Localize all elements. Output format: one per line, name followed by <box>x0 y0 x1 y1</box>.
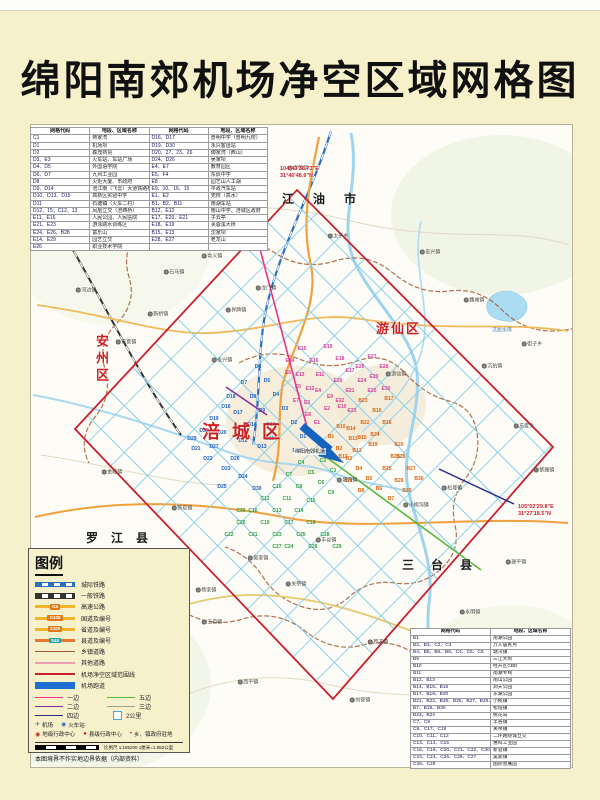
table-cell: 丰谷镇 <box>491 719 571 726</box>
table-cell: B9 <box>411 656 491 663</box>
table-cell: 火炬大厦、市政府 <box>90 178 149 185</box>
table-cell: B1、B2、B11 <box>149 200 208 207</box>
table-cell: E4、E7 <box>149 164 208 171</box>
legend-edge-items: 一边五边二边三边四边2公里 <box>35 693 183 720</box>
table-row: C7、C9丰谷镇 <box>411 719 571 726</box>
table-cell: B2、B3、C2、C3 <box>411 642 491 649</box>
table-cell: 国际会展园 <box>491 761 571 768</box>
table-row: B7、B19、B30松垭镇 <box>411 705 571 712</box>
县级行政中心-icon: ● <box>83 731 87 737</box>
table-row: D12、15；C12、13凤凰立交（涪西桥）B12、E12南山中学、涪城区政府 <box>31 207 268 214</box>
table-cell: 子云亭 <box>208 215 267 222</box>
edge-label: 四边 <box>67 711 79 720</box>
legend-label: 一般铁路 <box>81 591 105 600</box>
table-cell: D1 <box>31 142 90 149</box>
legend-label: 县道及编号 <box>81 636 111 645</box>
table-cell: 火车站、车站广场 <box>90 157 149 164</box>
table-row: B1南湖公园 <box>411 635 571 642</box>
edge-label: 二边 <box>67 702 79 711</box>
table-cell: 人民公园、人民医院 <box>90 215 149 222</box>
table-cell: 小枧镇 <box>491 698 571 705</box>
page: { "title": "绵阳南郊机场净空区域网格图", "colors": { … <box>0 0 600 800</box>
table-cell: C7、C9 <box>411 719 491 726</box>
table-cell: 平政汽车站 <box>208 186 267 193</box>
table-row: D9、D14涪江南（飞云）大道铁路桥E9、10、16、15平政汽车站 <box>31 186 268 193</box>
table-row: D1机场坝D19、D30永兴客运站 <box>31 142 268 149</box>
edge-label: 一边 <box>67 693 79 702</box>
table-cell: 关帝镇 <box>491 726 571 733</box>
table-cell: 东湖公园 <box>491 691 571 698</box>
reservoir <box>487 291 527 321</box>
table-cell: B11 <box>411 670 491 677</box>
table-header: 网格代码 <box>411 629 491 636</box>
table-cell: 南山中学、涪城区政府 <box>208 207 267 214</box>
symbol-label: 机场 <box>42 721 53 729</box>
table-cell: 蒋家湾 <box>90 135 149 142</box>
table-cell: E9、10、16、15 <box>149 186 208 193</box>
table-cell: 吴家镇 <box>491 754 571 761</box>
table-cell: D2 <box>31 149 90 156</box>
table-row: E11、E16人民公园、人民医院E17、E20、E21子云亭 <box>31 215 268 222</box>
scale-text: 比例尺 1:185200 1厘米=1.852公里 <box>104 745 173 751</box>
table-cell: B4、B5、B6、B8、C4、C5、C6 <box>411 649 491 656</box>
table-cell: 园艺山人工湖 <box>208 178 267 185</box>
legend-label: 机场跑道 <box>81 681 105 690</box>
table-row: B11南湖专线 <box>411 670 571 677</box>
legend-symbol: ●县级行政中心 <box>83 730 122 738</box>
legend-label: 乡镇道路 <box>81 647 105 656</box>
table-cell: 九州工业园 <box>90 171 149 178</box>
legend-item: 乡镇道路 <box>35 646 183 657</box>
table-cell: 党校（高水） <box>208 193 267 200</box>
table-row: B21、B22、B25、B26、B27、B28、B29小枧镇 <box>411 698 571 705</box>
table-cell: D10、D13、D15 <box>31 193 90 200</box>
table-cell: E1、E2 <box>149 193 208 200</box>
table-cell: C13、C14、C15 <box>411 740 491 747</box>
legend-label: 城际铁路 <box>81 580 105 589</box>
table-cell: C8、C17、C18 <box>411 726 491 733</box>
legend-item: S105省道及编号 <box>35 624 183 635</box>
table-header: 地段、区域名称 <box>90 128 149 135</box>
terrain-patch <box>391 135 572 295</box>
table-cell: 石塘镇（火车二村） <box>90 200 149 207</box>
table-cell: B17、B18、B20 <box>411 691 491 698</box>
symbol-label: 地级行政中心 <box>42 730 75 738</box>
symbol-label: 火车站 <box>68 721 85 729</box>
table-cell: 机场坝 <box>90 142 149 149</box>
table-cell: C28、C29 <box>411 761 491 768</box>
国道及编号-swatch: G108 <box>35 617 75 620</box>
legend-label: 机场净空区域范围线 <box>81 670 135 679</box>
地级行政中心-icon: ◉ <box>35 731 40 738</box>
legend-label: 高速公路 <box>81 602 105 611</box>
table-cell: D8 <box>31 178 90 185</box>
legend-panel: 图例 城际铁路一般铁路G5高速公路G108国道及编号S105省道及编号S40县道… <box>28 548 190 753</box>
edge-line <box>107 697 135 699</box>
table-cell: E14、E29 <box>31 236 90 243</box>
table-cell: 职业技术学院 <box>90 244 149 251</box>
legend-item: S40县道及编号 <box>35 635 183 646</box>
table-cell: E28、E27 <box>149 236 208 243</box>
城际铁路-swatch <box>35 582 75 588</box>
page-title: 绵阳南郊机场净空区域网格图 <box>0 48 600 106</box>
table-cell: 森茂商贸 <box>90 149 149 156</box>
grid-code-table-top: 网格代码地段、区域名称网格代码地段、区域名称C1蒋家湾D16、D17普明中学（普… <box>30 127 268 251</box>
grid-square-label: 2公里 <box>126 711 141 720</box>
table-cell: 南湖车站 <box>208 200 267 207</box>
table-cell: 惠科工业园 <box>491 740 571 747</box>
table-row: B17、B18、B20东湖公园 <box>411 691 571 698</box>
table-cell: D9、D14 <box>31 186 90 193</box>
page-top-strip <box>0 0 600 11</box>
table-cell: E18、E19 <box>149 222 208 229</box>
table-cell: D24、D26 <box>149 157 208 164</box>
legend-item: 其他道路 <box>35 657 183 668</box>
table-row: C8、C17、C18关帝镇 <box>411 726 571 733</box>
table-cell: B14、B15、B16 <box>411 684 491 691</box>
table-cell: C23、C24、C25、C26、C27 <box>411 754 491 761</box>
table-cell: 新皂镇 <box>491 747 571 754</box>
legend-scale: 比例尺 1:185200 1厘米=1.852公里 <box>35 742 183 751</box>
table-cell: E8 <box>149 178 208 185</box>
table-cell: D19、D30 <box>149 142 208 149</box>
机场跑道-swatch <box>35 682 75 689</box>
table-row: E14、E29园艺立交E28、E27老龙山 <box>31 236 268 243</box>
table-cell: 万人居民点 <box>491 642 571 649</box>
table-row: D10、D13、D15高新区实验中学E1、E2党校（高水） <box>31 193 268 200</box>
legend-symbols-row2: ◉地级行政中心●县级行政中心•乡、镇政府驻地 <box>35 729 183 739</box>
table-cell: E24、E26、B28 <box>31 229 90 236</box>
table-cell: 芙蓉溪大桥 <box>208 222 267 229</box>
table-row: B4、B5、B6、B8、C4、C5、C6塘汛镇 <box>411 649 571 656</box>
table-header: 网格代码 <box>31 128 90 135</box>
table-cell: 涪江南（飞云）大道铁路桥 <box>90 186 149 193</box>
table-cell: D20、27、23、26 <box>149 149 208 156</box>
table-cell: 南山公园 <box>491 677 571 684</box>
机场-icon: ✈ <box>35 721 40 728</box>
乡镇道路-swatch <box>35 651 75 652</box>
table-cell: B7、B19、B30 <box>411 705 491 712</box>
table-cell: B12、B13 <box>411 677 491 684</box>
table-cell: 高新区实验中学 <box>90 193 149 200</box>
table-cell: E26 <box>31 244 90 251</box>
legend-label: 国道及编号 <box>81 614 111 623</box>
table-row: C1蒋家湾D16、D17普明中学（普明九校） <box>31 135 268 142</box>
table-cell: B15、E13 <box>149 229 208 236</box>
table-row: E21、E23游泳跳水训练区E18、E19芙蓉溪大桥 <box>31 222 268 229</box>
table-cell: 永兴客运站 <box>208 142 267 149</box>
table-cell: E5、F4 <box>149 171 208 178</box>
grid-code-table-bottom: 网格代码地段、区域名称B1南湖公园B2、B3、C2、C3万人居民点B4、B5、B… <box>410 628 571 769</box>
table-cell: E17、E20、E21 <box>149 215 208 222</box>
road-number-badge: S40 <box>49 638 61 644</box>
table-header: 地段、区域名称 <box>491 629 571 636</box>
symbol-label: 县级行政中心 <box>89 730 122 738</box>
table-cell: C1 <box>31 135 90 142</box>
其他道路-swatch <box>35 662 75 664</box>
table-cell <box>149 244 208 251</box>
road-number-badge: G108 <box>47 615 62 621</box>
table-cell: 沈家坝 <box>208 229 267 236</box>
legend-label: 省道及编号 <box>81 625 111 634</box>
table-cell: C16、C19、C20、C21、C22、C30 <box>411 747 491 754</box>
edge-line <box>107 706 135 708</box>
火车站-icon: ◉ <box>61 721 66 728</box>
一般铁路-swatch <box>35 593 75 599</box>
table-row: C23、C24、C25、C26、C27吴家镇 <box>411 754 571 761</box>
edge-line <box>35 697 63 699</box>
table-cell: C10、C11、C12 <box>411 733 491 740</box>
table-row: D2森茂商贸D20、27、23、26御家湾（西山） <box>31 149 268 156</box>
table-row: C16、C19、C20、C21、C22、C30新皂镇 <box>411 747 571 754</box>
table-row: D11石塘镇（火车二村）B1、B2、B11南湖车站 <box>31 200 268 207</box>
legend-item: 机场净空区域范围线 <box>35 669 183 680</box>
table-row: E24、E26、B28富乐山B15、E13沈家坝 <box>31 229 268 236</box>
高速公路-swatch: G5 <box>35 605 75 608</box>
table-cell <box>208 244 267 251</box>
table-cell: 东辰中学 <box>208 171 267 178</box>
legend-symbol: ◉地级行政中心 <box>35 730 75 738</box>
legend-title: 图例 <box>35 553 63 576</box>
table-cell: B1 <box>411 635 491 642</box>
legend-item: 城际铁路 <box>35 579 183 590</box>
legend-label: 其他道路 <box>81 658 105 667</box>
table-cell: 洞天公园 <box>491 684 571 691</box>
table-row: B23、B24桃花岛 <box>411 712 571 719</box>
edge-label: 三边 <box>139 702 151 711</box>
table-cell: 塘汛镇 <box>491 649 571 656</box>
table-cell: 教育园区 <box>208 164 267 171</box>
table-row: D4、D5外国语学院E4、E7教育园区 <box>31 164 268 171</box>
table-cell: 园艺立交 <box>90 236 149 243</box>
table-cell: 游泳跳水训练区 <box>90 222 149 229</box>
legend-symbols-row1: ✈机场◉火车站 <box>35 720 183 730</box>
省道及编号-swatch: S105 <box>35 628 75 631</box>
table-cell: 御家湾（西山） <box>208 149 267 156</box>
table-row: D3、E3火车站、车站广场D24、D26吴家坝 <box>31 157 268 164</box>
table-row: B9三江大坝 <box>411 656 571 663</box>
table-cell: E11、E16 <box>31 215 90 222</box>
table-cell: D12、15；C12、13 <box>31 207 90 214</box>
table-cell: B10 <box>411 663 491 670</box>
legend-item: G108国道及编号 <box>35 613 183 624</box>
县道及编号-swatch: S40 <box>35 639 75 642</box>
table-row: D6、D7九州工业园E5、F4东辰中学 <box>31 171 268 178</box>
table-row: C13、C14、C15惠科工业园 <box>411 740 571 747</box>
edge-line <box>35 715 63 717</box>
table-cell: D16、D17 <box>149 135 208 142</box>
scale-bar <box>35 745 99 750</box>
table-cell: 普明中学（普明九校） <box>208 135 267 142</box>
edge-line <box>35 706 63 708</box>
legend-item: G5高速公路 <box>35 601 183 612</box>
table-cell: 南湖公园 <box>491 635 571 642</box>
table-row: B14、B15、B16洞天公园 <box>411 684 571 691</box>
乡、镇政府驻地-icon: • <box>130 731 132 737</box>
legend-symbol: ✈机场 <box>35 721 53 729</box>
legend-item: 一般铁路 <box>35 590 183 601</box>
edge-label: 五边 <box>139 693 151 702</box>
table-row: D8火炬大厦、市政府E8园艺山人工湖 <box>31 178 268 185</box>
table-cell: D3、E3 <box>31 157 90 164</box>
symbol-label: 乡、镇政府驻地 <box>134 730 173 738</box>
table-header: 网格代码 <box>149 128 208 135</box>
table-row: C28、C29国际会展园 <box>411 761 571 768</box>
legend-line-items: 城际铁路一般铁路G5高速公路G108国道及编号S105省道及编号S40县道及编号… <box>35 579 183 691</box>
table-cell: 二环路绕城立交 <box>491 733 571 740</box>
table-cell: 南湖专线 <box>491 670 571 677</box>
table-cell: 富乐山 <box>90 229 149 236</box>
table-cell: 三江大坝 <box>491 656 571 663</box>
table-cell: 老龙山 <box>208 236 267 243</box>
table-cell: 吴家坝 <box>208 157 267 164</box>
table-cell: D11 <box>31 200 90 207</box>
table-cell: 经开区CBD <box>491 663 571 670</box>
grid-square-sample <box>113 711 122 720</box>
table-cell: B21、B22、B25、B26、B27、B28、B29 <box>411 698 491 705</box>
table-header: 地段、区域名称 <box>208 128 267 135</box>
机场净空区域范围线-swatch <box>35 673 75 675</box>
legend-disclaimer: 本图境界不作实地边界依据（内部资料） <box>35 754 183 763</box>
legend-item: 机场跑道 <box>35 680 183 691</box>
table-row: B10经开区CBD <box>411 663 571 670</box>
table-row: C10、C11、C12二环路绕城立交 <box>411 733 571 740</box>
road-number-badge: S105 <box>48 626 63 632</box>
table-cell: E21、E23 <box>31 222 90 229</box>
table-row: B2、B3、C2、C3万人居民点 <box>411 642 571 649</box>
road-number-badge: G5 <box>50 604 60 610</box>
table-cell: 外国语学院 <box>90 164 149 171</box>
table-cell: D4、D5 <box>31 164 90 171</box>
table-cell: 松垭镇 <box>491 705 571 712</box>
table-row: E26职业技术学院 <box>31 244 268 251</box>
table-cell: B12、E12 <box>149 207 208 214</box>
table-cell: 凤凰立交（涪西桥） <box>90 207 149 214</box>
table-cell: B23、B24 <box>411 712 491 719</box>
table-cell: D6、D7 <box>31 171 90 178</box>
legend-symbol: •乡、镇政府驻地 <box>130 730 173 738</box>
table-cell: 桃花岛 <box>491 712 571 719</box>
legend-symbol: ◉火车站 <box>61 721 85 729</box>
table-row: B12、B13南山公园 <box>411 677 571 684</box>
